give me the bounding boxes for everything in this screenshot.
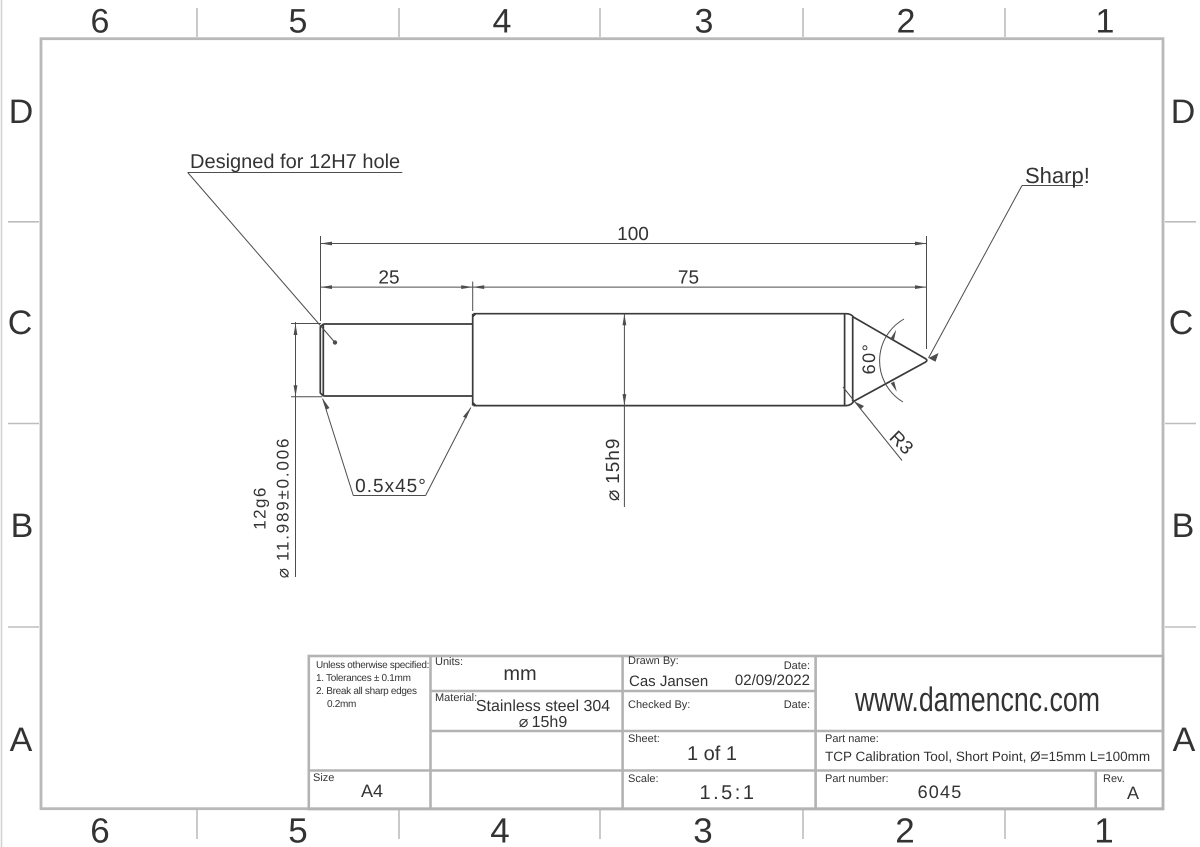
svg-text:100: 100 bbox=[617, 224, 649, 245]
svg-text:Checked By:: Checked By: bbox=[628, 699, 690, 711]
svg-text:TCP Calibration Tool, Short Po: TCP Calibration Tool, Short Point, Ø=15m… bbox=[825, 749, 1150, 764]
svg-text:D: D bbox=[9, 93, 34, 131]
svg-text:A: A bbox=[10, 721, 33, 759]
svg-text:3: 3 bbox=[695, 3, 714, 41]
svg-text:1.5:1: 1.5:1 bbox=[700, 782, 757, 804]
svg-text:mm: mm bbox=[503, 663, 536, 685]
svg-text:⌀ 15h9: ⌀ 15h9 bbox=[519, 714, 568, 731]
svg-text:D: D bbox=[1171, 93, 1196, 131]
svg-text:Date:: Date: bbox=[784, 699, 810, 711]
svg-text:5: 5 bbox=[288, 812, 307, 847]
svg-text:Part name:: Part name: bbox=[825, 733, 879, 745]
svg-text:2: 2 bbox=[895, 812, 914, 847]
svg-text:www.damencnc.com: www.damencnc.com bbox=[854, 681, 1100, 719]
svg-text:Size: Size bbox=[313, 772, 334, 784]
svg-text:⌀ 15h9: ⌀ 15h9 bbox=[603, 438, 624, 502]
svg-text:Units:: Units: bbox=[435, 656, 463, 668]
svg-text:Scale:: Scale: bbox=[628, 773, 659, 785]
svg-text:1: 1 bbox=[1096, 3, 1115, 41]
svg-text:6045: 6045 bbox=[918, 782, 963, 802]
svg-text:Drawn By:: Drawn By: bbox=[628, 655, 679, 667]
svg-text:0.2mm: 0.2mm bbox=[327, 699, 356, 710]
svg-text:C: C bbox=[1169, 304, 1194, 342]
svg-text:A4: A4 bbox=[361, 781, 383, 801]
svg-text:12g6: 12g6 bbox=[251, 486, 270, 529]
svg-text:2. Break all sharp edges: 2. Break all sharp edges bbox=[316, 686, 417, 697]
svg-text:6: 6 bbox=[91, 3, 110, 41]
svg-text:Cas Jansen: Cas Jansen bbox=[629, 673, 708, 690]
svg-text:B: B bbox=[11, 507, 34, 545]
svg-text:75: 75 bbox=[678, 268, 699, 289]
svg-text:⌀ 11.989±0.006: ⌀ 11.989±0.006 bbox=[274, 437, 293, 578]
svg-text:1: 1 bbox=[1094, 812, 1113, 847]
svg-text:2: 2 bbox=[897, 3, 916, 41]
svg-text:Rev.: Rev. bbox=[1103, 773, 1125, 785]
svg-text:60°: 60° bbox=[859, 343, 879, 375]
svg-text:Material:: Material: bbox=[435, 692, 477, 704]
svg-text:Sheet:: Sheet: bbox=[628, 733, 660, 745]
svg-text:C: C bbox=[8, 304, 33, 342]
svg-text:Stainless steel 304: Stainless steel 304 bbox=[476, 698, 610, 715]
svg-text:Designed for 12H7 hole: Designed for 12H7 hole bbox=[190, 151, 400, 173]
svg-text:Sharp!: Sharp! bbox=[1025, 163, 1090, 188]
svg-text:25: 25 bbox=[378, 268, 399, 289]
svg-text:0.5x45°: 0.5x45° bbox=[355, 476, 427, 497]
svg-text:3: 3 bbox=[693, 812, 712, 847]
svg-text:4: 4 bbox=[493, 3, 512, 41]
svg-text:02/09/2022: 02/09/2022 bbox=[735, 672, 810, 689]
svg-text:B: B bbox=[1172, 507, 1195, 545]
svg-text:4: 4 bbox=[490, 812, 509, 847]
svg-text:Part number:: Part number: bbox=[825, 773, 889, 785]
svg-text:Unless otherwise specified:: Unless otherwise specified: bbox=[316, 660, 429, 671]
svg-text:A: A bbox=[1127, 783, 1139, 803]
svg-text:A: A bbox=[1173, 721, 1196, 759]
svg-text:Date:: Date: bbox=[784, 660, 810, 672]
svg-text:5: 5 bbox=[289, 3, 308, 41]
svg-text:6: 6 bbox=[90, 812, 109, 847]
svg-text:1. Tolerances ± 0.1mm: 1. Tolerances ± 0.1mm bbox=[316, 673, 411, 684]
svg-text:1 of 1: 1 of 1 bbox=[687, 743, 737, 765]
